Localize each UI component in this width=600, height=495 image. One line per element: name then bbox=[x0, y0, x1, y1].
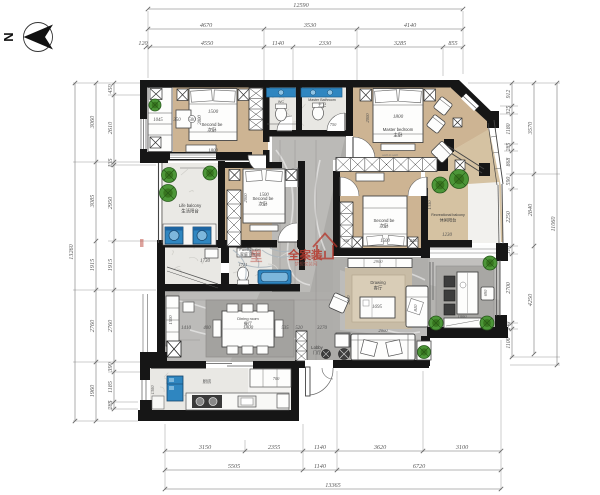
svg-text:2610: 2610 bbox=[107, 121, 114, 134]
svg-text:2760: 2760 bbox=[107, 319, 114, 332]
svg-text:梦想家装网: 梦想家装网 bbox=[295, 261, 318, 268]
svg-text:1730: 1730 bbox=[200, 259, 211, 264]
svg-text:里: 里 bbox=[250, 249, 263, 264]
svg-text:3270: 3270 bbox=[317, 326, 328, 331]
svg-text:325: 325 bbox=[506, 106, 512, 116]
svg-text:休闲阳台: 休闲阳台 bbox=[440, 217, 457, 224]
svg-text:6720: 6720 bbox=[413, 463, 426, 470]
svg-text:Life balcony: Life balcony bbox=[179, 203, 202, 208]
svg-text:Second be: Second be bbox=[202, 122, 224, 127]
svg-text:535: 535 bbox=[281, 326, 289, 331]
svg-text:2000: 2000 bbox=[198, 115, 203, 125]
svg-text:2355: 2355 bbox=[268, 444, 280, 451]
svg-text:2400: 2400 bbox=[346, 295, 351, 305]
svg-text:Recreational balcony: Recreational balcony bbox=[431, 213, 465, 217]
svg-text:1185: 1185 bbox=[107, 381, 114, 393]
svg-text:350: 350 bbox=[173, 118, 181, 123]
svg-text:2450: 2450 bbox=[410, 238, 420, 243]
svg-text:1140: 1140 bbox=[314, 444, 327, 451]
svg-text:1500: 1500 bbox=[380, 239, 390, 244]
svg-text:1100: 1100 bbox=[506, 337, 512, 348]
svg-text:3570: 3570 bbox=[527, 121, 534, 135]
svg-text:1330: 1330 bbox=[427, 200, 432, 210]
svg-text:1721: 1721 bbox=[239, 262, 248, 267]
svg-text:2950: 2950 bbox=[107, 196, 114, 209]
svg-text:520: 520 bbox=[295, 326, 303, 331]
svg-text:4250: 4250 bbox=[527, 293, 534, 306]
svg-text:285: 285 bbox=[107, 400, 114, 409]
svg-text:次卧: 次卧 bbox=[258, 201, 268, 208]
svg-text:912: 912 bbox=[506, 90, 512, 99]
svg-text:次卧: 次卧 bbox=[207, 127, 217, 134]
svg-text:客厅: 客厅 bbox=[374, 285, 383, 292]
svg-text:生活阳台: 生活阳台 bbox=[181, 208, 199, 215]
svg-text:3530: 3530 bbox=[303, 22, 317, 29]
svg-text:4670: 4670 bbox=[200, 22, 213, 29]
svg-text:1915: 1915 bbox=[89, 259, 96, 271]
svg-text:5505: 5505 bbox=[228, 463, 240, 470]
svg-text:N: N bbox=[1, 32, 16, 41]
svg-text:1300: 1300 bbox=[150, 385, 155, 395]
svg-text:1915: 1915 bbox=[107, 259, 114, 271]
svg-text:1500: 1500 bbox=[168, 315, 173, 325]
svg-text:11060: 11060 bbox=[550, 216, 557, 232]
svg-text:300: 300 bbox=[343, 238, 350, 243]
svg-text:1800: 1800 bbox=[393, 114, 404, 120]
svg-text:2760: 2760 bbox=[89, 319, 96, 332]
svg-text:700: 700 bbox=[273, 376, 280, 381]
svg-text:3060: 3060 bbox=[89, 115, 96, 129]
svg-text:1140: 1140 bbox=[272, 40, 285, 47]
svg-text:450: 450 bbox=[107, 83, 114, 93]
svg-text:3285: 3285 bbox=[393, 40, 406, 47]
svg-text:1410: 1410 bbox=[181, 326, 192, 331]
svg-text:1230: 1230 bbox=[442, 233, 453, 238]
svg-text:12590: 12590 bbox=[293, 2, 309, 9]
svg-text:3085: 3085 bbox=[89, 195, 96, 208]
svg-text:3620: 3620 bbox=[373, 444, 387, 451]
svg-text:750: 750 bbox=[330, 122, 337, 127]
svg-text:810: 810 bbox=[413, 304, 418, 312]
svg-text:1140: 1140 bbox=[314, 463, 327, 470]
svg-text:3150: 3150 bbox=[198, 444, 212, 451]
svg-text:主卧: 主卧 bbox=[393, 132, 403, 139]
svg-text:2250: 2250 bbox=[506, 211, 512, 223]
svg-text:285: 285 bbox=[506, 143, 512, 152]
svg-text:1800: 1800 bbox=[243, 325, 254, 331]
svg-text:855: 855 bbox=[448, 40, 457, 47]
svg-text:1800: 1800 bbox=[208, 149, 218, 154]
svg-text:690: 690 bbox=[483, 289, 488, 296]
svg-text:2000: 2000 bbox=[243, 193, 248, 203]
svg-text:120: 120 bbox=[138, 40, 148, 47]
svg-text:1695: 1695 bbox=[372, 305, 383, 310]
svg-text:2330: 2330 bbox=[319, 40, 332, 47]
svg-text:13260: 13260 bbox=[68, 243, 75, 259]
svg-text:2700: 2700 bbox=[506, 282, 512, 294]
svg-text:4550: 4550 bbox=[201, 40, 214, 47]
svg-text:厨房: 厨房 bbox=[203, 378, 212, 385]
svg-text:门厅: 门厅 bbox=[313, 349, 321, 356]
svg-text:500: 500 bbox=[188, 118, 196, 123]
svg-text:3100: 3100 bbox=[455, 444, 469, 451]
svg-text:2900: 2900 bbox=[373, 259, 383, 264]
svg-text:390: 390 bbox=[107, 361, 114, 372]
svg-text:4140: 4140 bbox=[404, 22, 417, 29]
svg-text:1500: 1500 bbox=[208, 109, 219, 115]
svg-text:1000: 1000 bbox=[458, 314, 468, 319]
svg-text:400: 400 bbox=[203, 326, 211, 331]
svg-text:Second be: Second be bbox=[374, 218, 396, 223]
svg-text:2000: 2000 bbox=[365, 113, 370, 123]
svg-text:1960: 1960 bbox=[89, 384, 96, 397]
svg-text:13365: 13365 bbox=[325, 482, 340, 489]
svg-text:868: 868 bbox=[506, 158, 512, 167]
svg-text:Master bedroom: Master bedroom bbox=[383, 127, 414, 132]
svg-text:次卧: 次卧 bbox=[379, 223, 389, 230]
svg-text:135: 135 bbox=[107, 158, 114, 167]
svg-text:主卫: 主卫 bbox=[318, 101, 326, 107]
svg-text:2000: 2000 bbox=[378, 328, 388, 333]
svg-text:1180: 1180 bbox=[506, 123, 512, 134]
svg-text:Drawing: Drawing bbox=[370, 280, 386, 285]
svg-text:wall to wall: wall to wall bbox=[382, 153, 398, 157]
svg-text:1500: 1500 bbox=[259, 193, 269, 198]
svg-text:WC: WC bbox=[278, 100, 285, 104]
svg-text:1045: 1045 bbox=[153, 118, 163, 123]
svg-text:590: 590 bbox=[506, 177, 512, 186]
svg-text:2840: 2840 bbox=[527, 203, 534, 216]
